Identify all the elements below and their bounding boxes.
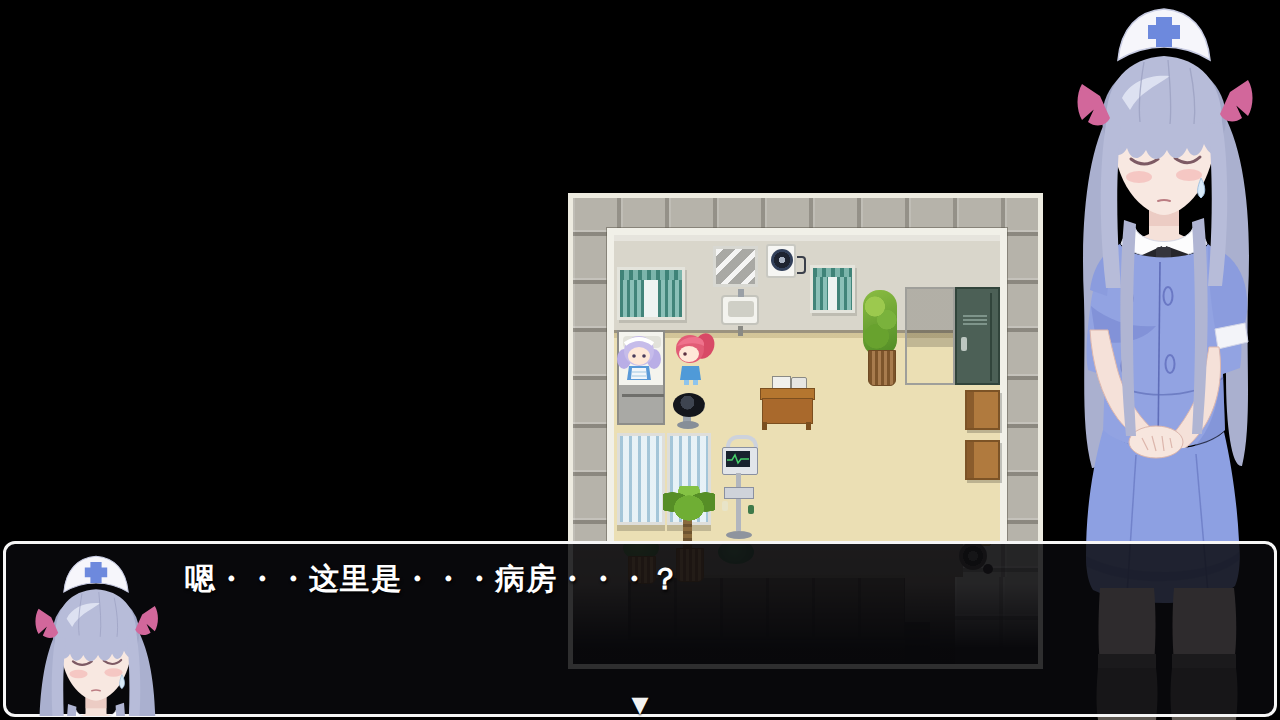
dialogue-portrait [26, 550, 166, 716]
instrument-desk [760, 376, 813, 430]
round-stool [673, 393, 707, 433]
wall-sink [721, 295, 759, 325]
dialogue-window[interactable]: 嗯・・・这里是・・・病房・・・？ ▼ [3, 541, 1277, 717]
dialogue-text: 嗯・・・这里是・・・病房・・・？ [185, 559, 681, 600]
medical-monitor-stand [720, 435, 758, 547]
maid-character [617, 332, 661, 384]
wooden-chair-1 [965, 390, 1000, 430]
continue-indicator: ▼ [632, 694, 649, 716]
green-locker [955, 287, 1000, 385]
game-screen[interactable]: 嗯・・・这里是・・・病房・・・？ ▼ [0, 0, 1280, 720]
ventilation-fan [766, 244, 796, 278]
privacy-screen-1 [617, 433, 665, 525]
tall-potted-plant [860, 290, 902, 388]
curtained-window [617, 267, 685, 320]
wall-mirror [713, 246, 758, 287]
curtained-window-2 [810, 265, 855, 313]
fan-cord [797, 256, 806, 274]
refrigerator [905, 287, 955, 385]
wooden-chair-2 [965, 440, 1000, 480]
pink-haired-character [671, 330, 715, 387]
